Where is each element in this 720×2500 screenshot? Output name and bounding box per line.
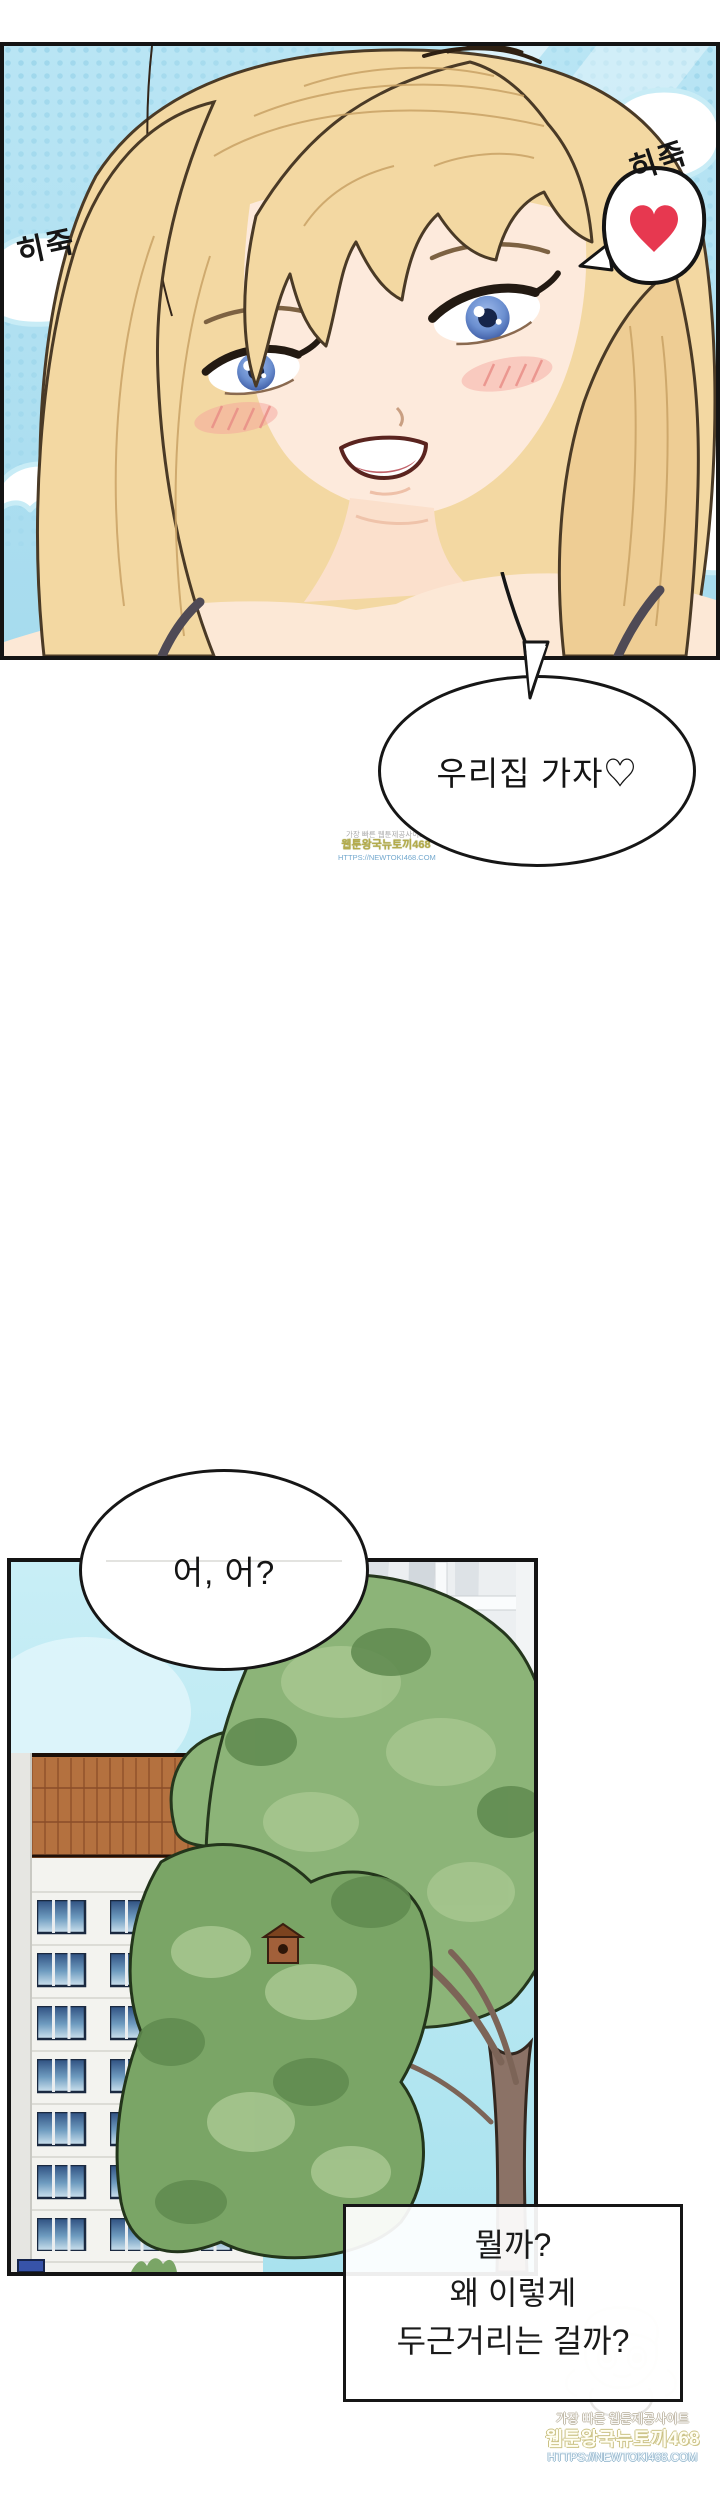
thought-line-1: 뭘까?	[475, 2221, 552, 2269]
speech-bubble-1: 우리집 가자♡	[378, 675, 696, 867]
watermark-mid-url: HTTPS://NEWTOKI468.COM	[338, 853, 434, 862]
watermark-bottom-url: HTTPS://NEWTOKI468.COM	[545, 2451, 700, 2465]
girl-portrait	[4, 46, 716, 656]
thought-line-3: 두근거리는 걸까?	[397, 2317, 630, 2365]
building-entrance	[18, 2260, 44, 2272]
watermark-bottom-site: 웹툰왕국뉴토끼468	[545, 2428, 700, 2452]
speech-bubble-2-text: 어, 어?	[173, 1546, 275, 1594]
panel-girl: 히죽 히죽	[0, 42, 720, 660]
speech-tail	[478, 572, 568, 702]
watermark-mid-site: 웹툰왕국뉴토끼468	[338, 839, 434, 853]
thought-box: 뭘까? 왜 이렇게 두근거리는 걸까?	[343, 2204, 683, 2402]
street-scene	[11, 1562, 534, 2272]
panel-street	[7, 1558, 538, 2276]
webtoon-page: 히죽 히죽 우리집 가자♡ 가장 빠른 웹툰제공사이트 웹툰왕국뉴토끼468 H…	[0, 0, 720, 2500]
thought-line-2: 왜 이렇게	[450, 2269, 577, 2317]
speech-bubble-1-text: 우리집 가자♡	[437, 747, 638, 795]
speech-bubble-2: 어, 어?	[79, 1469, 369, 1671]
watermark-bottom: 가장 빠른 웹툰제공사이트 웹툰왕국뉴토끼468 HTTPS://NEWTOKI…	[545, 2412, 700, 2466]
watermark-bottom-tagline: 가장 빠른 웹툰제공사이트	[545, 2412, 700, 2428]
